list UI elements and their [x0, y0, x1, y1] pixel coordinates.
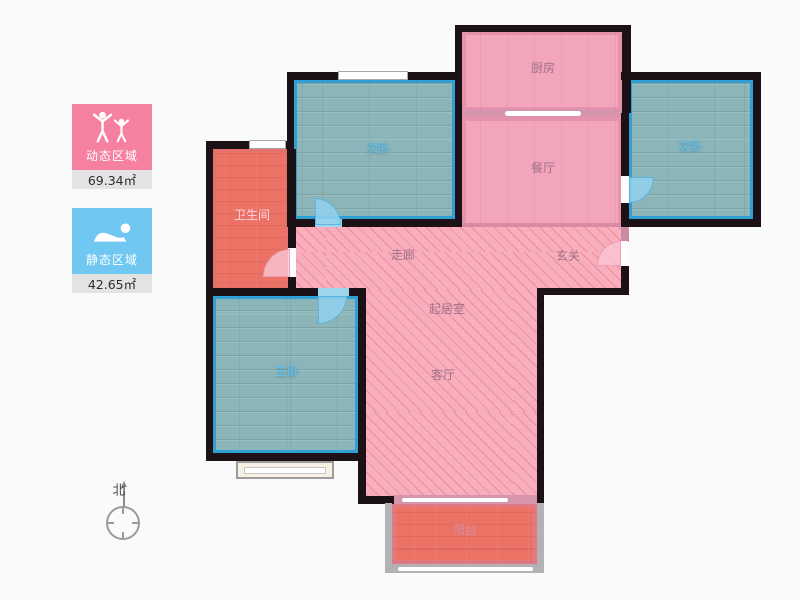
room-balcony[interactable]: 阳台	[392, 503, 537, 564]
room-label-corridor: 走廊	[391, 249, 415, 261]
legend-dynamic-label: 动态区域	[86, 147, 138, 164]
legend-static-label: 静态区域	[86, 251, 138, 268]
static-area-text: 42.65㎡	[88, 274, 136, 293]
wall	[206, 453, 366, 461]
compass-tick	[122, 508, 124, 514]
door-opening-entry	[620, 241, 628, 266]
room-dining[interactable]: 餐厅	[462, 117, 622, 227]
door-opening-bedroom-right	[621, 176, 629, 203]
compass-tick	[108, 522, 114, 524]
floorplan-canvas: 动态区域 69.34㎡ 静态区域 42.65㎡ 厨房 餐厅 走廊 玄关 起居室 …	[0, 0, 800, 600]
compass-tick	[132, 522, 138, 524]
sleeping-person-icon	[89, 219, 135, 249]
room-corridor[interactable]: 走廊 玄关	[296, 227, 622, 290]
room-label-kitchen: 厨房	[531, 62, 555, 74]
room-label-dining: 餐厅	[531, 162, 555, 174]
balcony-wall	[537, 503, 544, 573]
wall	[621, 219, 761, 227]
room-label-balcony: 阳台	[453, 524, 477, 536]
door-opening-master	[318, 288, 349, 296]
wall	[621, 113, 629, 227]
balcony-sliding-door	[402, 498, 508, 503]
room-label-entry: 玄关	[556, 250, 580, 262]
legend-dynamic-area-value: 69.34㎡	[72, 170, 152, 189]
room-label-bathroom: 卫生间	[234, 209, 270, 221]
room-bedroom-right[interactable]: 次卧	[629, 80, 753, 219]
wall	[537, 288, 629, 295]
kitchen-sliding-door	[505, 111, 581, 116]
wall	[455, 25, 462, 227]
wall	[287, 219, 462, 227]
entry-wall-segment	[621, 227, 629, 242]
wall	[455, 25, 631, 32]
room-living[interactable]: 起居室 客厅	[366, 290, 537, 496]
bay-window-inner	[244, 467, 326, 474]
window-bedroom-left	[338, 71, 408, 80]
legend-dynamic-area: 动态区域	[72, 104, 152, 170]
compass-north-label: 北	[112, 480, 125, 499]
room-label-bedroom-right: 次卧	[678, 140, 702, 152]
wall	[622, 25, 631, 113]
wall	[753, 72, 761, 227]
wall	[358, 288, 366, 504]
room-label-parlor: 客厅	[431, 369, 455, 381]
legend-static-area-value: 42.65㎡	[72, 274, 152, 293]
bay-window-master	[236, 461, 334, 479]
wall	[621, 266, 629, 295]
room-label-master: 主卧	[275, 365, 299, 377]
room-kitchen[interactable]: 厨房	[462, 31, 622, 111]
room-master-bedroom[interactable]: 主卧	[213, 296, 358, 453]
balcony-wall	[385, 503, 392, 573]
room-label-bedroom-left: 次卧	[366, 142, 390, 154]
window-bathroom	[249, 140, 286, 149]
cheering-people-icon	[89, 111, 135, 145]
dynamic-area-text: 69.34㎡	[88, 170, 136, 189]
room-label-living: 起居室	[429, 303, 465, 315]
compass-tick	[122, 532, 124, 538]
dining-corridor-boundary	[462, 223, 622, 227]
wall	[537, 288, 544, 504]
wall	[621, 72, 761, 80]
legend-static-area: 静态区域	[72, 208, 152, 274]
wall	[206, 141, 213, 461]
balcony-window	[398, 567, 533, 572]
